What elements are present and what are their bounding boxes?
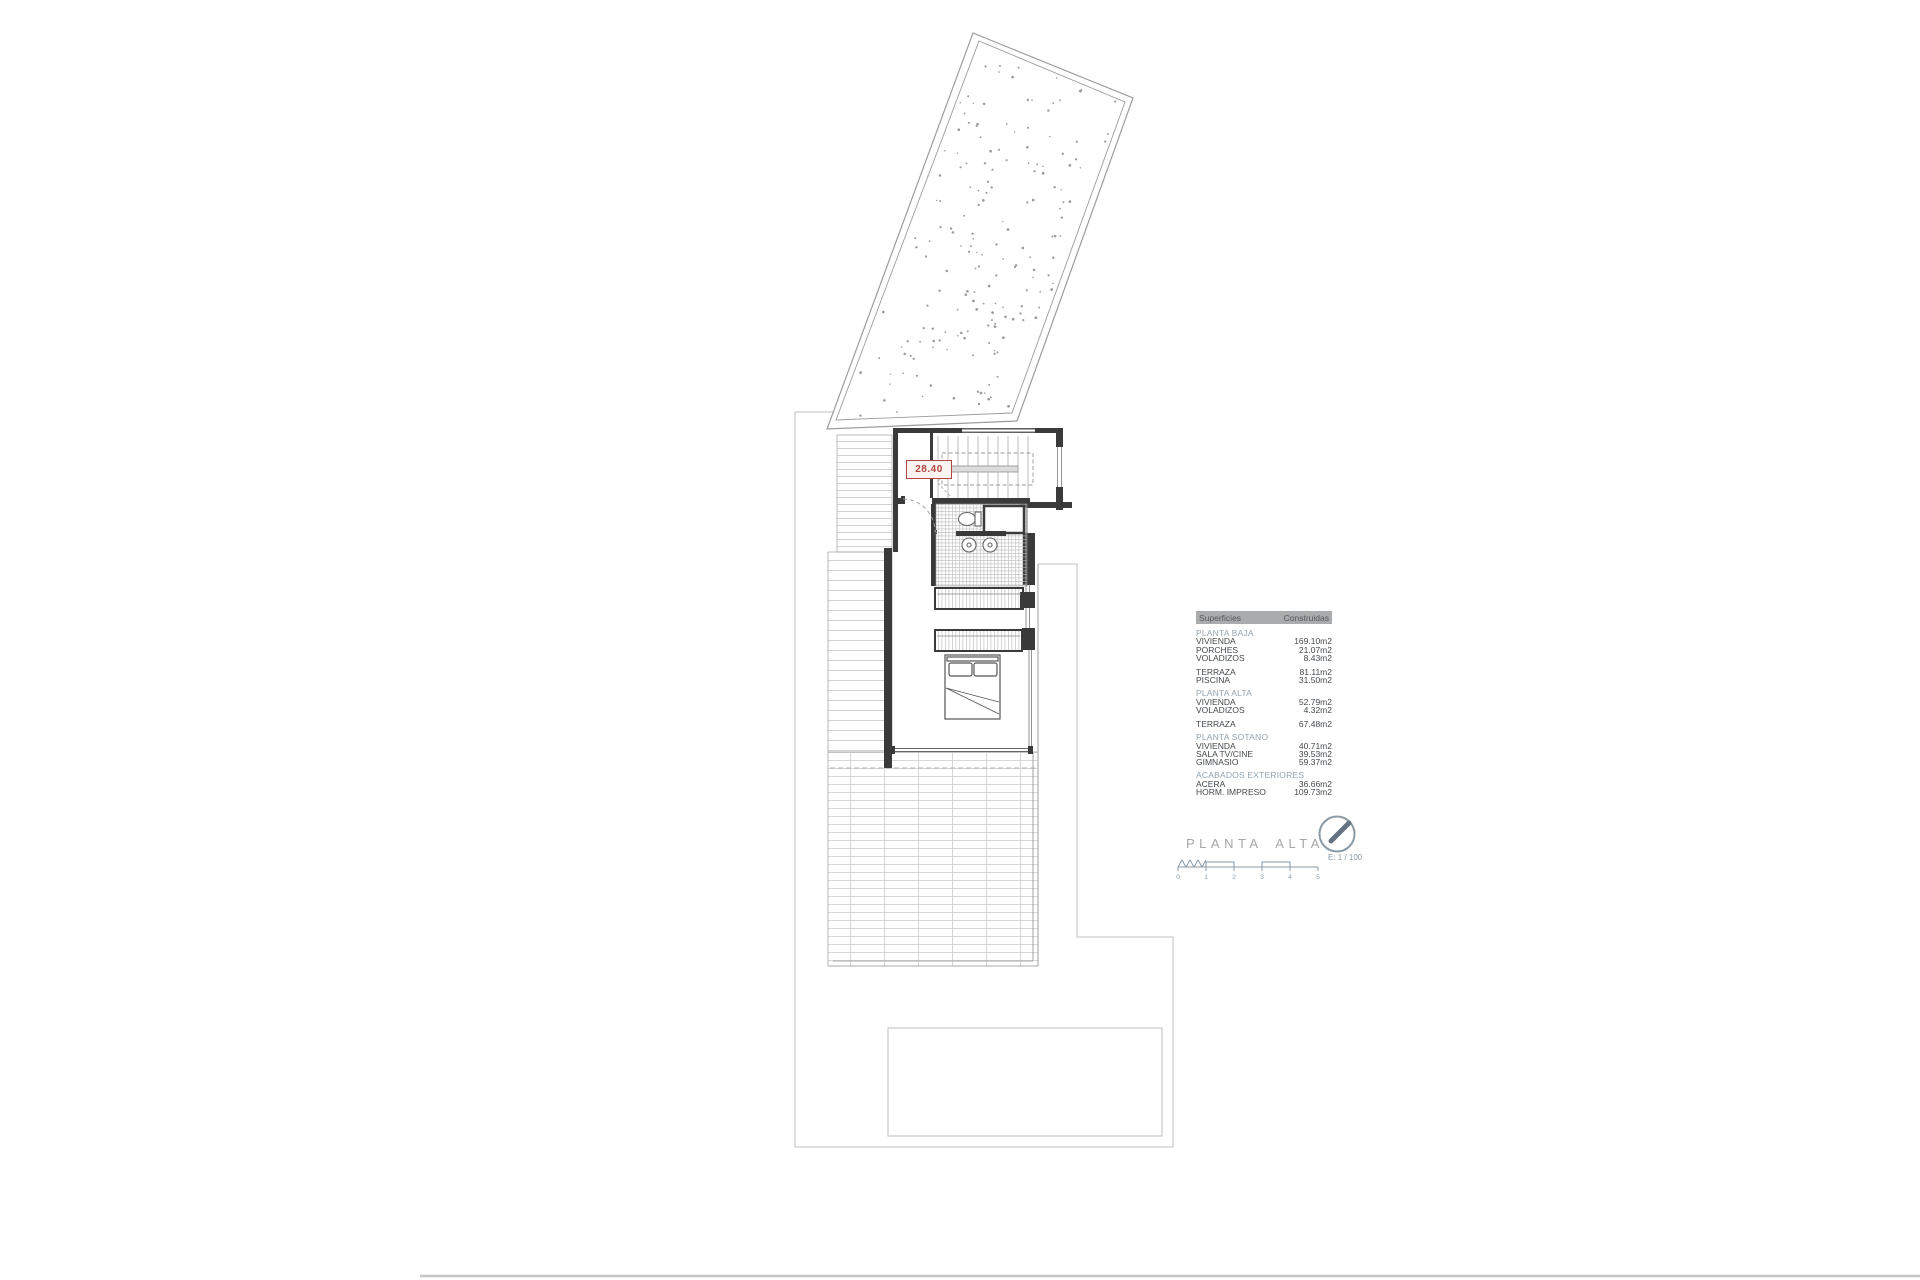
wardrobes [935, 588, 1023, 651]
floor-plan-drawing: 0 1 2 3 4 5 E: 1 / 100 [0, 0, 1920, 1280]
pool-outline [888, 1028, 1162, 1136]
table-row: PISCINA31.50m2 [1196, 676, 1332, 684]
north-compass-icon [1320, 817, 1355, 852]
scale-numbers: 0 1 2 3 4 5 [1176, 874, 1320, 881]
areas-table: Superficies Construidas PLANTA BAJAVIVIE… [1196, 611, 1332, 796]
table-row: VOLADIZOS8.43m2 [1196, 654, 1332, 662]
plan-title: PLANTA ALTA [1186, 836, 1324, 851]
row-label: HORM. IMPRESO [1196, 788, 1266, 796]
row-value: 31.50m2 [1299, 676, 1332, 684]
row-label: VOLADIZOS [1196, 654, 1245, 662]
table-row: HORM. IMPRESO109.73m2 [1196, 788, 1332, 796]
scale-tick: 3 [1260, 874, 1264, 881]
row-label: TERRAZA [1196, 720, 1236, 728]
column-header-construidas: Construidas [1284, 613, 1329, 623]
shower [984, 506, 1024, 533]
table-row: TERRAZA67.48m2 [1196, 720, 1332, 728]
scale-bar [1178, 860, 1318, 871]
table-row: GIMNASIO59.37m2 [1196, 758, 1332, 766]
row-label: VOLADIZOS [1196, 706, 1245, 714]
row-value: 67.48m2 [1299, 720, 1332, 728]
level-label: 28.40 [906, 460, 952, 479]
bed [945, 655, 1000, 719]
scale-tick: 4 [1288, 874, 1292, 881]
row-value: 59.37m2 [1299, 758, 1332, 766]
scale-tick: 5 [1316, 874, 1320, 881]
areas-table-header: Superficies Construidas [1196, 611, 1332, 624]
row-value: 8.43m2 [1304, 654, 1332, 662]
scale-ratio-text: E: 1 / 100 [1328, 853, 1363, 862]
floor-plan-page: 0 1 2 3 4 5 E: 1 / 100 28.40 Superficies… [0, 0, 1920, 1280]
scale-tick: 0 [1176, 874, 1180, 881]
scale-tick: 1 [1204, 874, 1208, 881]
stair-handrail [948, 466, 1018, 472]
terrain-plot [827, 33, 1133, 429]
scale-tick: 2 [1232, 874, 1236, 881]
bathroom [903, 499, 1027, 586]
row-value: 109.73m2 [1294, 788, 1332, 796]
table-row: VOLADIZOS4.32m2 [1196, 706, 1332, 714]
row-label: PISCINA [1196, 676, 1230, 684]
row-label: GIMNASIO [1196, 758, 1239, 766]
row-value: 4.32m2 [1304, 706, 1332, 714]
toilet [959, 512, 982, 526]
door-swing-arc [903, 499, 935, 532]
column-header-superficies: Superficies [1199, 613, 1241, 623]
areas-table-body: PLANTA BAJAVIVIENDA169.10m2PORCHES21.07m… [1196, 629, 1332, 796]
